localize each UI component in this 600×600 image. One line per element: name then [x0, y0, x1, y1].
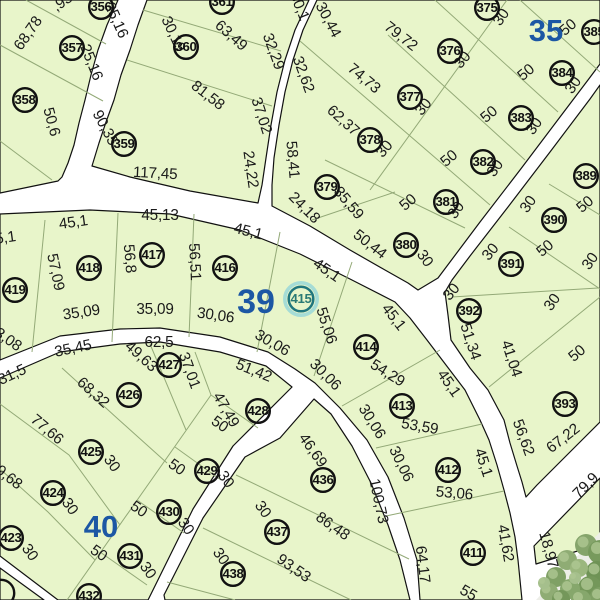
svg-text:425: 425	[80, 444, 101, 459]
svg-text:39: 39	[237, 283, 275, 321]
svg-text:414: 414	[355, 339, 377, 354]
svg-text:391: 391	[500, 256, 521, 271]
svg-text:377: 377	[399, 89, 420, 104]
svg-text:356: 356	[90, 0, 111, 14]
svg-text:430: 430	[158, 504, 179, 519]
svg-text:375: 375	[476, 0, 497, 15]
svg-text:56,8: 56,8	[120, 243, 139, 273]
svg-text:58,41: 58,41	[282, 140, 302, 179]
svg-text:423: 423	[0, 530, 21, 545]
svg-text:35: 35	[529, 13, 563, 48]
svg-text:428: 428	[247, 403, 268, 418]
svg-text:416: 416	[214, 260, 235, 275]
svg-text:361: 361	[211, 0, 232, 9]
svg-text:378: 378	[359, 132, 380, 147]
svg-text:117,45: 117,45	[133, 164, 178, 183]
svg-text:393: 393	[554, 396, 575, 411]
svg-text:429: 429	[196, 463, 217, 478]
svg-text:418: 418	[78, 260, 99, 275]
svg-text:62,5: 62,5	[145, 334, 174, 351]
svg-text:412: 412	[437, 462, 458, 477]
svg-text:419: 419	[4, 282, 25, 297]
svg-text:438: 438	[222, 566, 243, 581]
svg-text:382: 382	[472, 154, 493, 169]
svg-text:411: 411	[463, 545, 483, 560]
svg-text:358: 358	[14, 92, 35, 107]
svg-text:415: 415	[290, 291, 311, 306]
svg-text:432: 432	[78, 588, 99, 600]
svg-text:40: 40	[84, 509, 118, 544]
svg-text:357: 357	[61, 40, 82, 55]
svg-text:392: 392	[458, 303, 479, 318]
svg-text:383: 383	[510, 110, 531, 125]
svg-text:360: 360	[175, 39, 196, 54]
svg-text:53,06: 53,06	[435, 483, 474, 503]
svg-text:376: 376	[439, 43, 460, 58]
svg-text:385: 385	[583, 24, 600, 39]
svg-text:417: 417	[141, 247, 162, 262]
svg-text:389: 389	[575, 168, 596, 183]
svg-text:381: 381	[435, 194, 456, 209]
svg-text:424: 424	[42, 485, 64, 500]
svg-text:427: 427	[158, 357, 179, 372]
svg-text:413: 413	[391, 398, 412, 413]
svg-text:431: 431	[119, 548, 140, 563]
svg-text:35,09: 35,09	[136, 301, 173, 318]
svg-text:56,51: 56,51	[185, 243, 204, 281]
svg-text:45,13: 45,13	[141, 207, 178, 224]
svg-text:379: 379	[316, 179, 337, 194]
svg-text:426: 426	[118, 387, 139, 402]
svg-text:380: 380	[395, 237, 416, 252]
svg-text:436: 436	[312, 472, 333, 487]
svg-text:384: 384	[551, 65, 573, 80]
svg-text:359: 359	[113, 136, 134, 151]
svg-text:437: 437	[266, 524, 287, 539]
svg-text:390: 390	[543, 212, 564, 227]
